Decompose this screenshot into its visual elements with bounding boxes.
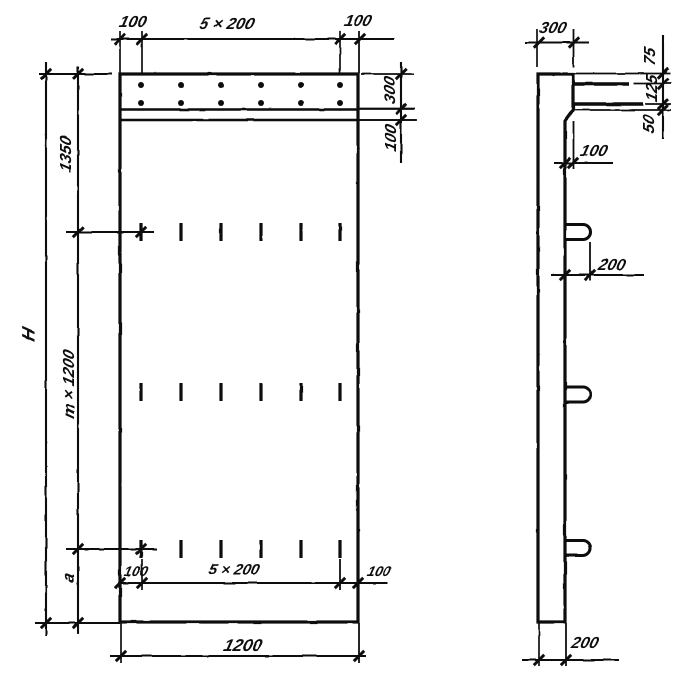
svg-text:100: 100 <box>365 564 392 580</box>
svg-text:200: 200 <box>595 256 627 274</box>
svg-text:300: 300 <box>381 74 399 105</box>
svg-text:m × 1200: m × 1200 <box>60 348 78 420</box>
svg-text:300: 300 <box>537 19 568 37</box>
svg-text:1350: 1350 <box>57 134 75 174</box>
svg-text:100: 100 <box>117 13 148 31</box>
svg-text:5 × 200: 5 × 200 <box>198 15 256 33</box>
svg-text:5 × 200: 5 × 200 <box>207 562 262 579</box>
svg-text:100: 100 <box>382 122 400 153</box>
svg-text:125: 125 <box>643 71 661 103</box>
svg-text:200: 200 <box>568 634 600 652</box>
svg-text:1200: 1200 <box>222 635 265 655</box>
svg-text:100: 100 <box>578 142 609 160</box>
svg-text:100: 100 <box>122 564 149 580</box>
svg-text:100: 100 <box>342 12 373 30</box>
